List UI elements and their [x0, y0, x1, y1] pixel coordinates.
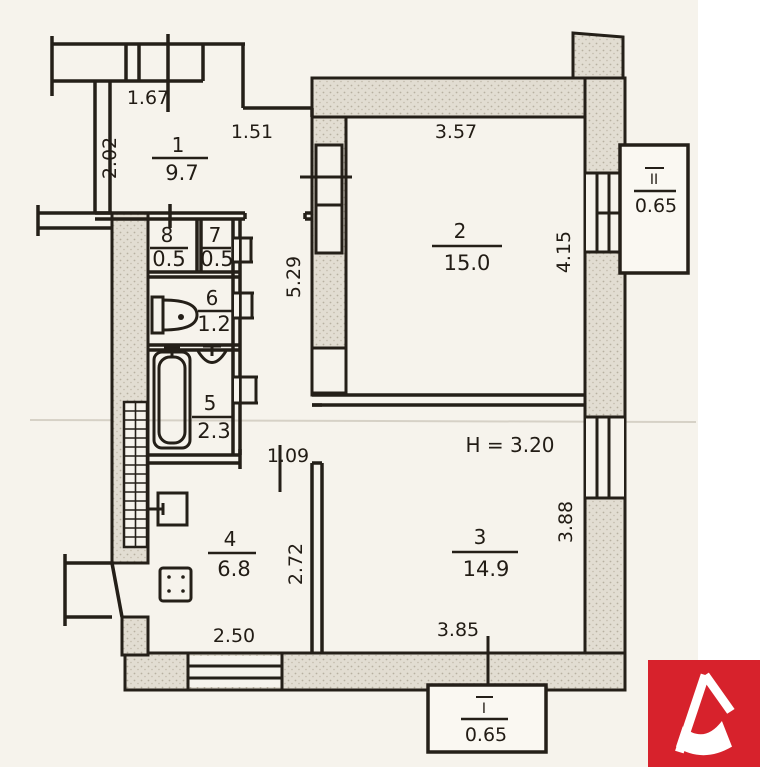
agency-logo	[648, 660, 760, 767]
room-8-number: 8	[161, 223, 174, 247]
room-8-area: 0.5	[152, 247, 185, 271]
staircase-hatch	[124, 402, 147, 547]
room-7-number: 7	[209, 223, 222, 247]
room-7-area: 0.5	[200, 247, 233, 271]
dim-3-88: 3.88	[555, 501, 577, 543]
dim-3-85: 3.85	[437, 619, 479, 641]
balcony-2-number: II	[650, 172, 658, 188]
room-5-area: 2.3	[197, 419, 230, 443]
window-kitchen	[188, 653, 282, 690]
room-4-number: 4	[224, 527, 237, 551]
room-2-number: 2	[454, 219, 467, 243]
dim-2-02: 2.02	[99, 137, 121, 179]
window-room3	[585, 417, 625, 498]
ceiling-height-note: H = 3.20	[465, 433, 554, 457]
room-6-area: 1.2	[197, 312, 230, 336]
room-5-number: 5	[204, 391, 217, 415]
dim-3-57: 3.57	[435, 121, 477, 143]
balcony-1-area: 0.65	[465, 724, 507, 746]
dim-1-51: 1.51	[231, 121, 273, 143]
room-1-area: 9.7	[165, 161, 198, 185]
room-3-number: 3	[474, 525, 487, 549]
room-4-area: 6.8	[217, 557, 250, 581]
room-2-area: 15.0	[444, 251, 491, 275]
room-3-area: 14.9	[463, 557, 510, 581]
floor-plan-drawing: 1 9.7 2 15.0 3 14.9 4 6.8 5 2.3 6 1.2 7 …	[0, 0, 760, 767]
dim-2-72: 2.72	[285, 543, 307, 585]
balcony-1-number: I	[482, 701, 486, 717]
dim-1-67: 1.67	[127, 87, 169, 109]
room-1-number: 1	[172, 133, 185, 157]
floorplan-scan: { "plan": { "ceiling_height_note": "H = …	[0, 0, 760, 767]
dim-4-15: 4.15	[553, 231, 575, 273]
dim-2-50: 2.50	[213, 625, 255, 647]
dim-5-29: 5.29	[283, 256, 305, 298]
balcony-2-area: 0.65	[635, 195, 677, 217]
room-6-number: 6	[206, 286, 219, 310]
dim-1-09: 1.09	[267, 445, 309, 467]
